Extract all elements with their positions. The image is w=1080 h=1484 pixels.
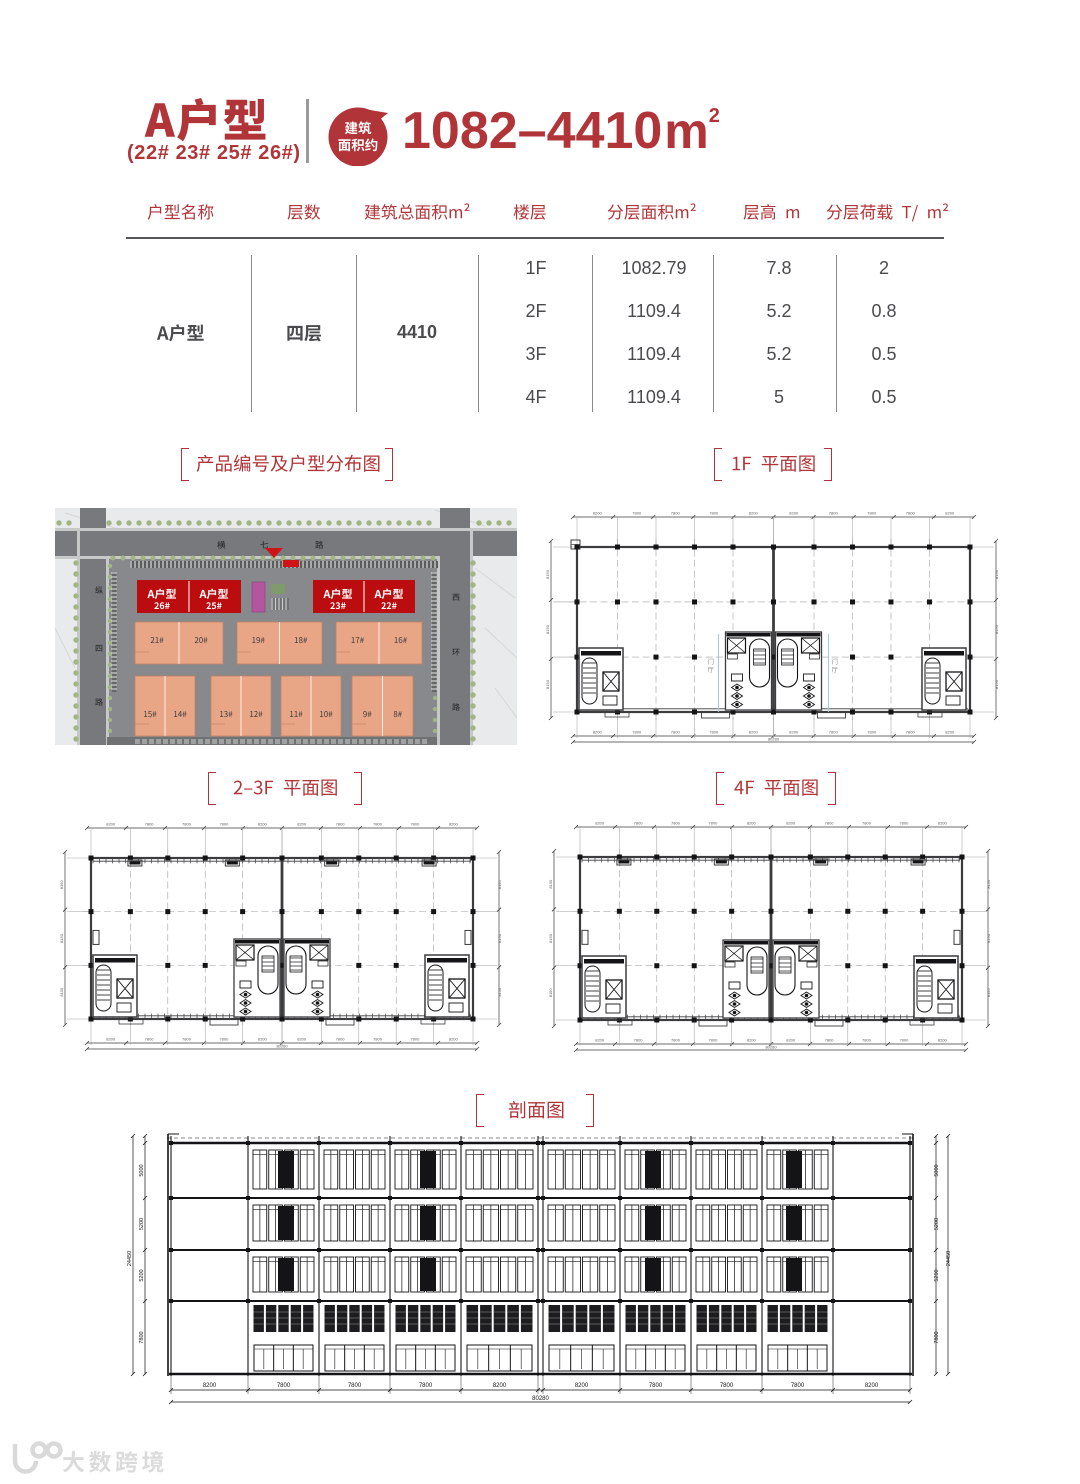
svg-text:8200: 8200 [747, 821, 757, 826]
svg-text:7800: 7800 [336, 1037, 346, 1042]
svg-text:7800: 7800 [899, 821, 909, 826]
svg-text:8200: 8200 [865, 1383, 879, 1389]
svg-text:8200: 8200 [786, 821, 796, 826]
svg-text:8200: 8200 [938, 1038, 948, 1043]
svg-text:7800: 7800 [632, 511, 642, 516]
svg-text:8200: 8200 [258, 822, 268, 827]
svg-text:7800: 7800 [219, 822, 229, 827]
svg-text:8200: 8200 [789, 730, 799, 735]
svg-text:8150: 8150 [548, 933, 553, 943]
svg-text:8150: 8150 [545, 569, 550, 579]
svg-text:7800: 7800 [348, 1383, 362, 1389]
svg-text:7800: 7800 [671, 1038, 681, 1043]
svg-text:7800: 7800 [373, 1037, 383, 1042]
svg-text:8150: 8150 [986, 879, 991, 889]
svg-text:24450: 24450 [127, 1251, 133, 1266]
svg-text:7800: 7800 [145, 822, 155, 827]
svg-text:80280: 80280 [532, 1396, 549, 1402]
svg-text:7800: 7800 [145, 1037, 155, 1042]
svg-text:8200: 8200 [258, 1037, 268, 1042]
svg-text:8200: 8200 [297, 1037, 307, 1042]
svg-text:7800: 7800 [219, 1037, 229, 1042]
svg-text:8200: 8200 [593, 511, 603, 516]
svg-text:7800: 7800 [825, 1038, 835, 1043]
svg-text:8200: 8200 [297, 822, 307, 827]
svg-text:8200: 8200 [575, 1383, 589, 1389]
svg-text:7800: 7800 [862, 821, 872, 826]
svg-text:8150: 8150 [497, 880, 502, 890]
svg-text:8200: 8200 [593, 730, 603, 735]
svg-text:8150: 8150 [497, 933, 502, 943]
svg-text:7800: 7800 [867, 511, 877, 516]
svg-text:7800: 7800 [829, 511, 839, 516]
svg-text:80280: 80280 [768, 737, 780, 742]
svg-text:8200: 8200 [449, 1037, 459, 1042]
svg-text:8150: 8150 [545, 679, 550, 689]
svg-text:7800: 7800 [709, 730, 719, 735]
svg-text:7800: 7800 [671, 821, 681, 826]
svg-text:7800: 7800 [709, 511, 719, 516]
svg-text:8150: 8150 [545, 624, 550, 634]
svg-text:7800: 7800 [410, 1037, 420, 1042]
svg-text:8200: 8200 [938, 821, 948, 826]
svg-text:7800: 7800 [373, 822, 383, 827]
svg-text:7800: 7800 [277, 1383, 291, 1389]
svg-text:7800: 7800 [182, 822, 192, 827]
svg-text:7800: 7800 [634, 1038, 644, 1043]
svg-text:8150: 8150 [994, 624, 999, 634]
svg-text:8200: 8200 [789, 511, 799, 516]
svg-text:24450: 24450 [946, 1251, 952, 1266]
svg-text:7800: 7800 [336, 822, 346, 827]
svg-text:7800: 7800 [867, 730, 877, 735]
svg-text:8150: 8150 [994, 569, 999, 579]
svg-text:7800: 7800 [419, 1383, 433, 1389]
svg-text:8200: 8200 [595, 821, 605, 826]
svg-text:8200: 8200 [449, 822, 459, 827]
svg-text:7800: 7800 [791, 1383, 805, 1389]
svg-text:5000: 5000 [139, 1164, 145, 1176]
svg-text:7800: 7800 [708, 1038, 718, 1043]
svg-text:7800: 7800 [671, 730, 681, 735]
svg-text:7800: 7800 [634, 821, 644, 826]
svg-text:7800: 7800 [720, 1383, 734, 1389]
svg-text:7800: 7800 [906, 730, 916, 735]
svg-text:7800: 7800 [649, 1383, 663, 1389]
svg-text:8150: 8150 [986, 933, 991, 943]
svg-text:7800: 7800 [934, 1331, 940, 1343]
svg-text:5200: 5200 [139, 1218, 145, 1230]
svg-text:7800: 7800 [899, 1038, 909, 1043]
svg-text:7800: 7800 [906, 511, 916, 516]
svg-text:7800: 7800 [410, 822, 420, 827]
svg-text:7800: 7800 [862, 1038, 872, 1043]
svg-text:8200: 8200 [749, 511, 759, 516]
svg-text:7800: 7800 [829, 730, 839, 735]
svg-text:5200: 5200 [934, 1218, 940, 1230]
svg-text:7800: 7800 [182, 1037, 192, 1042]
svg-text:8150: 8150 [548, 879, 553, 889]
svg-text:80280: 80280 [765, 1045, 777, 1050]
svg-text:8200: 8200 [595, 1038, 605, 1043]
svg-text:7800: 7800 [671, 511, 681, 516]
svg-text:8200: 8200 [747, 1038, 757, 1043]
svg-text:8150: 8150 [548, 988, 553, 998]
svg-text:8200: 8200 [945, 730, 955, 735]
svg-text:8200: 8200 [493, 1383, 507, 1389]
svg-text:8150: 8150 [59, 933, 64, 943]
svg-text:7800: 7800 [632, 730, 642, 735]
svg-text:5000: 5000 [934, 1164, 940, 1176]
svg-text:8200: 8200 [106, 1037, 116, 1042]
svg-text:8150: 8150 [59, 987, 64, 997]
svg-text:8200: 8200 [203, 1383, 217, 1389]
svg-text:8150: 8150 [59, 880, 64, 890]
svg-text:7800: 7800 [139, 1331, 145, 1343]
svg-text:7800: 7800 [825, 821, 835, 826]
svg-text:8200: 8200 [749, 730, 759, 735]
svg-text:8200: 8200 [786, 1038, 796, 1043]
svg-text:8150: 8150 [994, 679, 999, 689]
svg-text:5200: 5200 [934, 1269, 940, 1281]
svg-text:8200: 8200 [945, 511, 955, 516]
svg-text:7800: 7800 [708, 821, 718, 826]
svg-text:8150: 8150 [986, 988, 991, 998]
svg-text:5200: 5200 [139, 1269, 145, 1281]
svg-text:80280: 80280 [276, 1044, 288, 1049]
svg-text:8200: 8200 [106, 822, 116, 827]
svg-text:8150: 8150 [497, 987, 502, 997]
